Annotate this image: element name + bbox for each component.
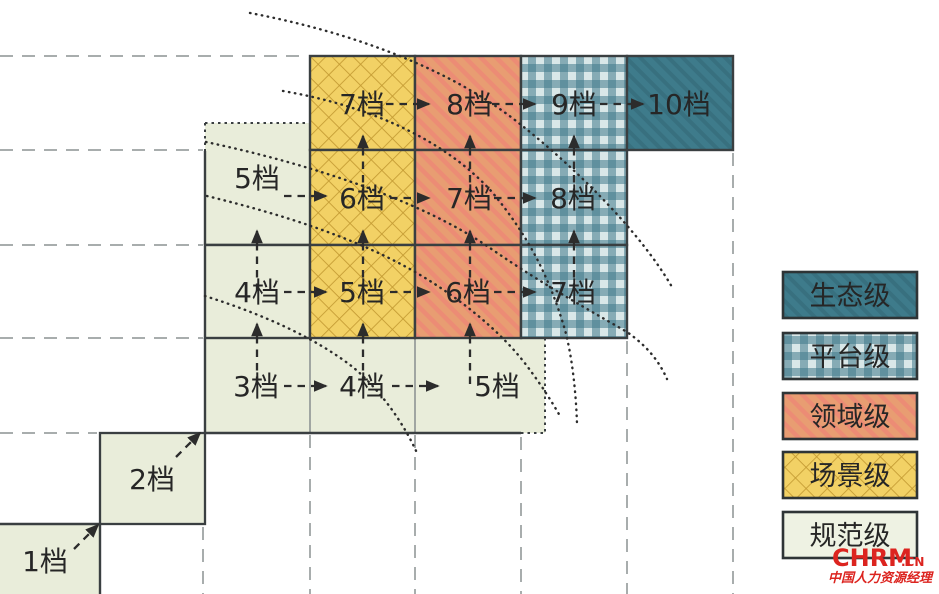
legend-label-domain: 领域级 [810, 402, 891, 433]
label-grade6-row2: 6档 [339, 182, 385, 215]
label-grade9-row1: 9档 [551, 88, 597, 121]
label-grade3-row4: 3档 [233, 370, 279, 403]
legend-item-domain: 领域级 [783, 393, 917, 439]
legend-label-scenario: 场景级 [810, 461, 891, 492]
label-grade2: 2档 [129, 463, 175, 496]
label-grade4-row3: 4档 [234, 276, 280, 309]
label-grade8-row2: 8档 [550, 182, 596, 215]
legend: 生态级 平台级 领域级 场景级 规范级 [783, 272, 917, 558]
label-grade5-row4: 5档 [474, 370, 520, 403]
legend-item-platform: 平台级 [783, 333, 917, 379]
legend-label-ecosystem: 生态级 [810, 281, 891, 312]
grade-staircase-diagram: 7档 8档 9档 10档 5档 6档 7档 8档 4档 5档 6档 7档 3档 … [0, 0, 939, 594]
label-grade5-row2: 5档 [234, 162, 280, 195]
watermark-domain: .CN [901, 555, 924, 569]
label-grade7-row2: 7档 [446, 182, 492, 215]
diagram-stage: 7档 8档 9档 10档 5档 6档 7档 8档 4档 5档 6档 7档 3档 … [0, 0, 939, 594]
label-grade7-row1: 7档 [339, 88, 385, 121]
legend-label-platform: 平台级 [810, 342, 891, 373]
label-grade6-row3: 6档 [445, 276, 491, 309]
label-grade4-row4: 4档 [339, 370, 385, 403]
legend-item-scenario: 场景级 [783, 452, 917, 498]
legend-item-ecosystem: 生态级 [783, 272, 917, 318]
label-grade7-row3: 7档 [550, 276, 596, 309]
label-grade10-row1: 10档 [647, 88, 711, 121]
label-grade5-row3: 5档 [339, 276, 385, 309]
label-grade8-row1: 8档 [446, 88, 492, 121]
watermark-subtitle: 中国人力资源经理 [828, 570, 934, 586]
label-grade1: 1档 [22, 545, 68, 578]
